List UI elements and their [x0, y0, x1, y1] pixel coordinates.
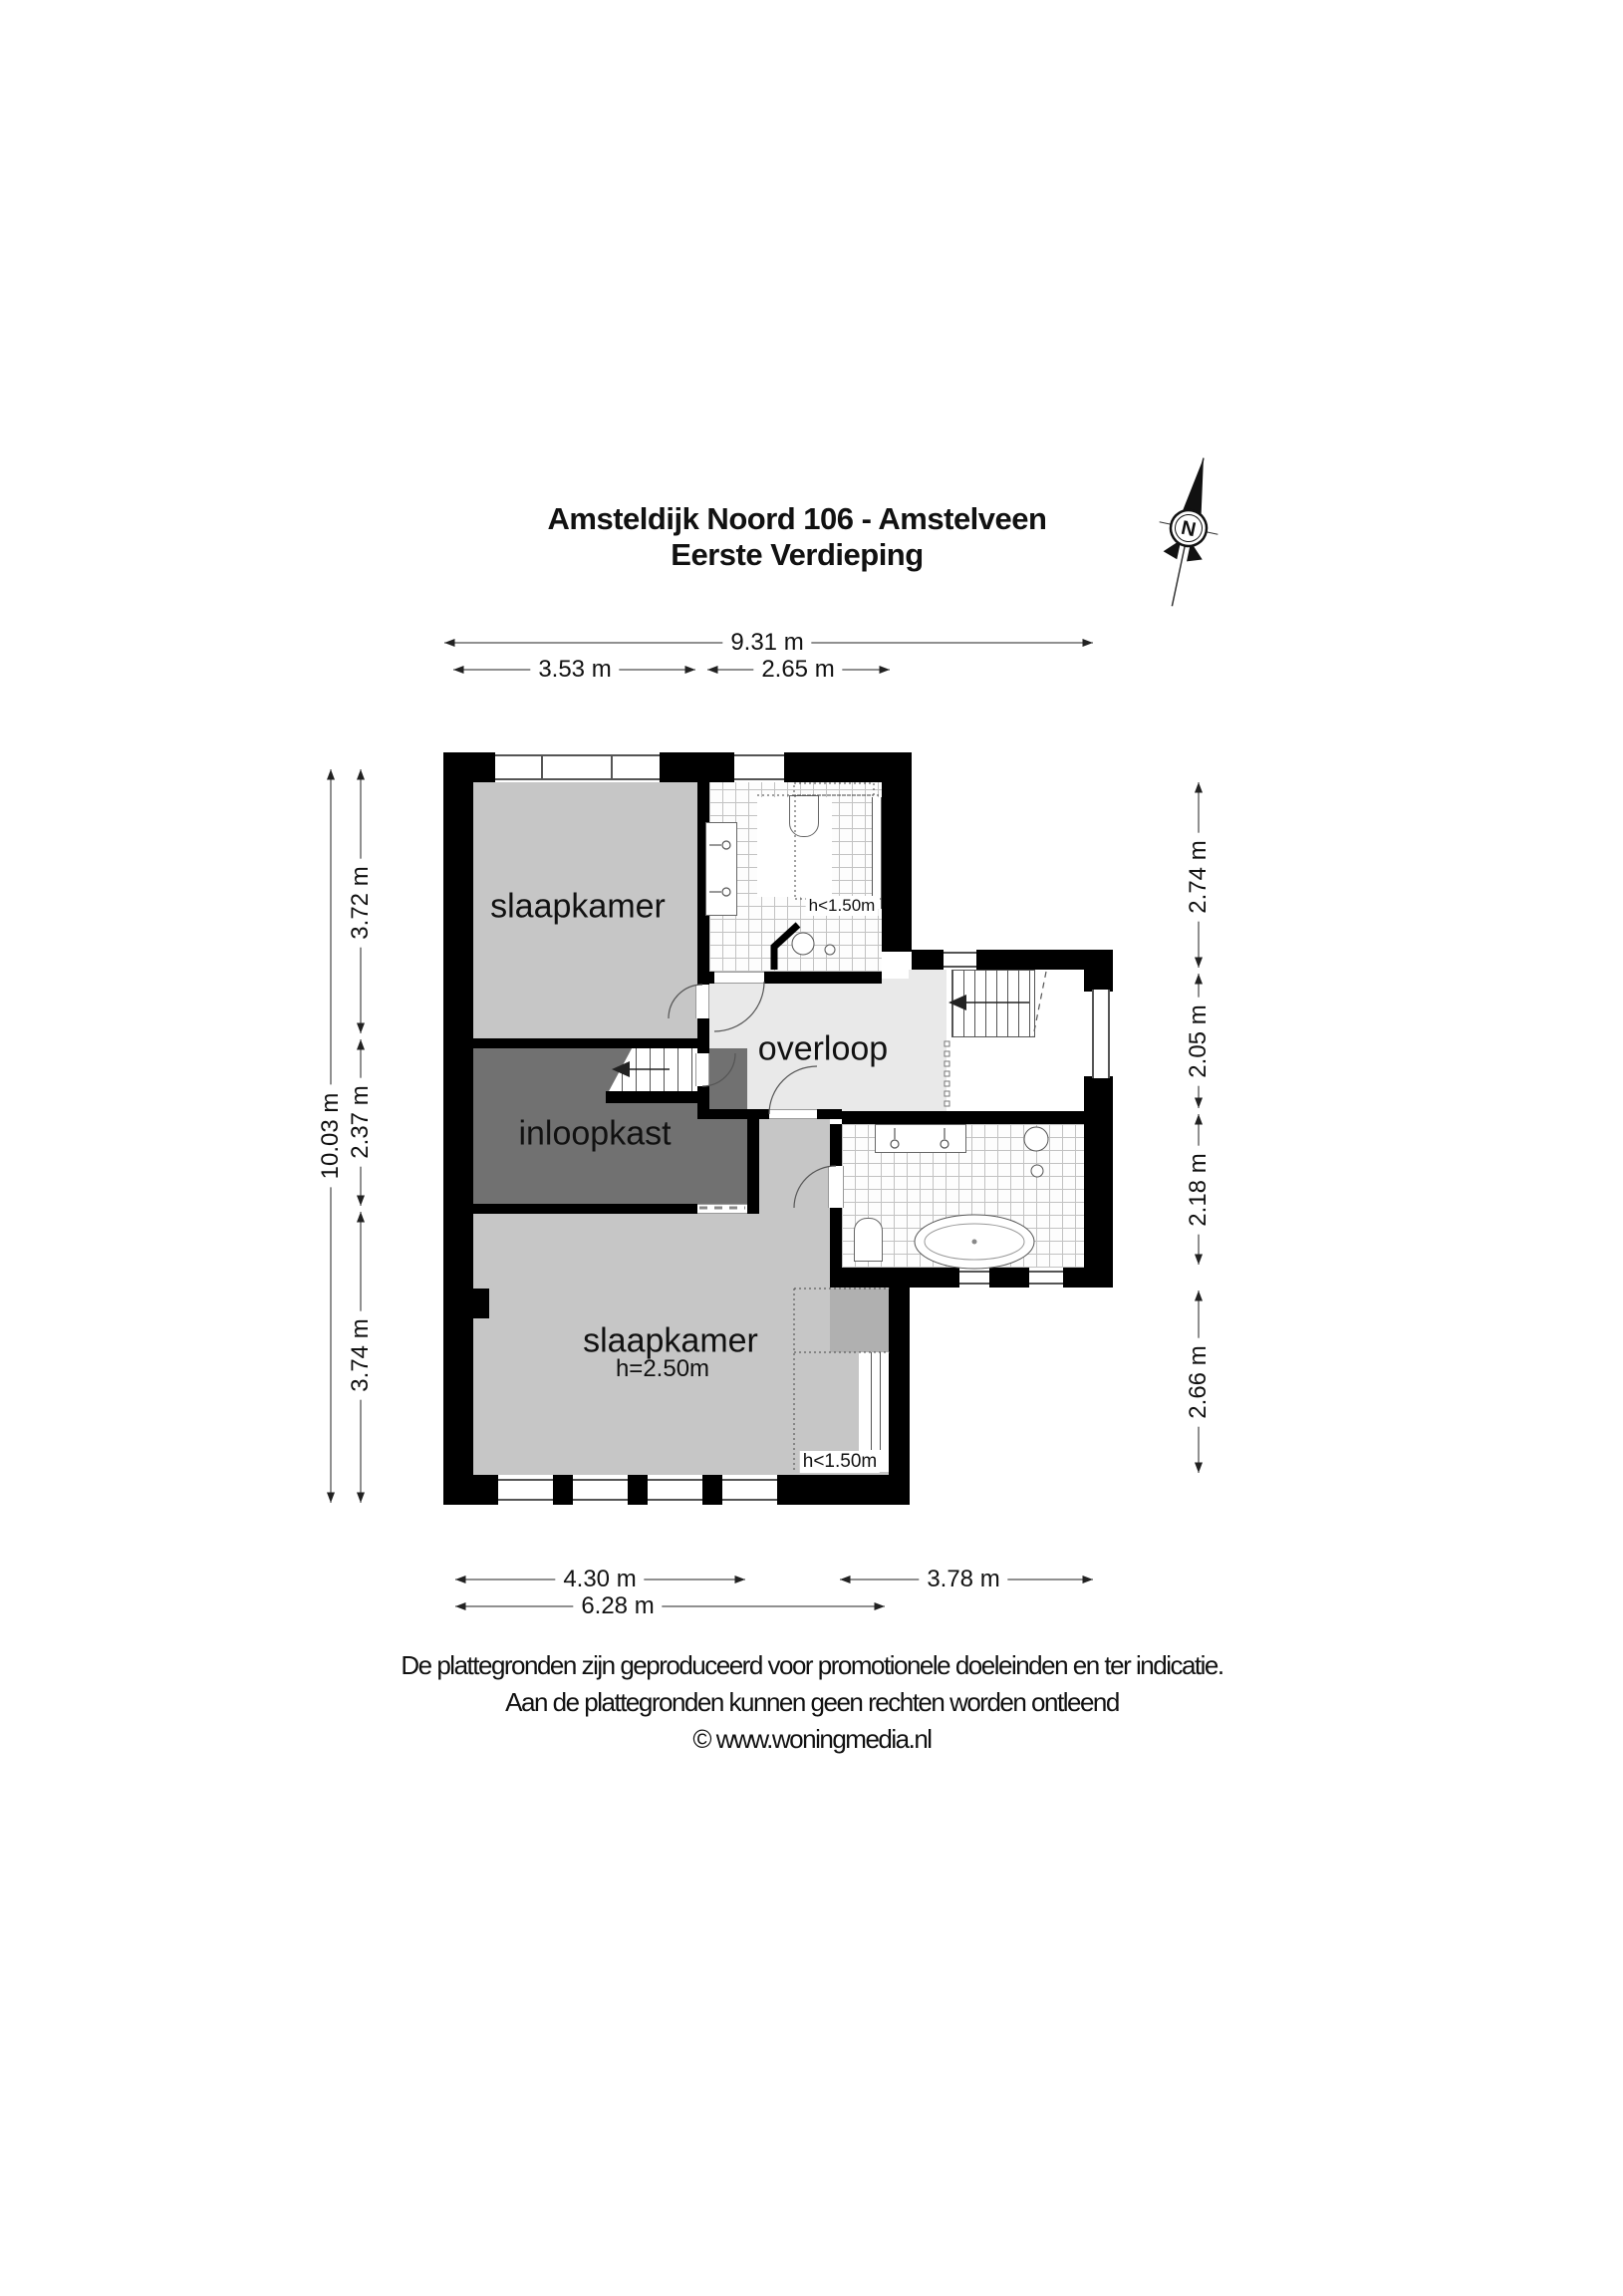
- dimension-label: 2.65 m: [753, 656, 842, 684]
- stair-direction-arrow: [612, 1061, 630, 1077]
- low-headroom-note-bottom: h<1.50m: [800, 1451, 880, 1473]
- dimension-label: 2.37 m: [347, 1077, 375, 1166]
- low-headroom-dotted-lines: [757, 783, 890, 1472]
- dimension-label: 3.78 m: [919, 1566, 1007, 1593]
- room-label-closet: inloopkast: [518, 1115, 671, 1154]
- dimension-label: 2.74 m: [1185, 832, 1213, 921]
- disclaimer-line-1: De plattegronden zijn geproduceerd voor …: [401, 1647, 1222, 1684]
- dimension-label: 2.05 m: [1185, 997, 1213, 1085]
- disclaimer-line-2: Aan de plattegronden kunnen geen rechten…: [401, 1684, 1222, 1721]
- shower-head-icon: [1024, 1127, 1048, 1151]
- dimension-lines: [331, 643, 1199, 1606]
- faucet-icon: [722, 888, 730, 896]
- door-arc: [702, 1053, 735, 1086]
- door-arc: [669, 985, 702, 1018]
- plan-linework: [0, 0, 1623, 2296]
- room-label-bedroom-top: slaapkamer: [490, 888, 666, 927]
- stair-balustrade: [945, 1041, 949, 1106]
- dimension-label: 2.18 m: [1185, 1145, 1213, 1234]
- dimension-label: 3.74 m: [347, 1310, 375, 1399]
- dimension-label: 10.03 m: [317, 1085, 345, 1188]
- ceiling-height-note: h=2.50m: [616, 1355, 709, 1383]
- door-arc: [714, 982, 764, 1031]
- floor-plan: slaapkamer overloop inloopkast slaapkame…: [0, 0, 1623, 2296]
- dimension-label: 9.31 m: [722, 629, 811, 657]
- dimension-label: 2.66 m: [1185, 1337, 1213, 1426]
- faucet-icon: [891, 1140, 899, 1148]
- door-arc: [794, 1166, 836, 1208]
- door-arc: [769, 1066, 817, 1114]
- copyright-line: © www.woningmedia.nl: [401, 1721, 1222, 1758]
- shower-drain-icon: [1031, 1165, 1043, 1177]
- dimension-label: 3.72 m: [347, 858, 375, 947]
- faucet-icon: [722, 841, 730, 849]
- low-headroom-note-top: h<1.50m: [806, 896, 879, 916]
- dimension-label: 3.53 m: [530, 656, 619, 684]
- shower-drain-icon: [825, 945, 835, 955]
- bathtub-drain-icon: [972, 1240, 977, 1245]
- dimension-label: 6.28 m: [573, 1592, 662, 1620]
- stair-direction-arrow: [948, 995, 966, 1010]
- dimension-label: 4.30 m: [555, 1566, 644, 1593]
- faucet-icon: [941, 1140, 948, 1148]
- door-arcs: [669, 982, 836, 1208]
- room-label-landing: overloop: [758, 1030, 888, 1069]
- disclaimer: De plattegronden zijn geproduceerd voor …: [401, 1647, 1222, 1758]
- shower-head-icon: [792, 933, 814, 955]
